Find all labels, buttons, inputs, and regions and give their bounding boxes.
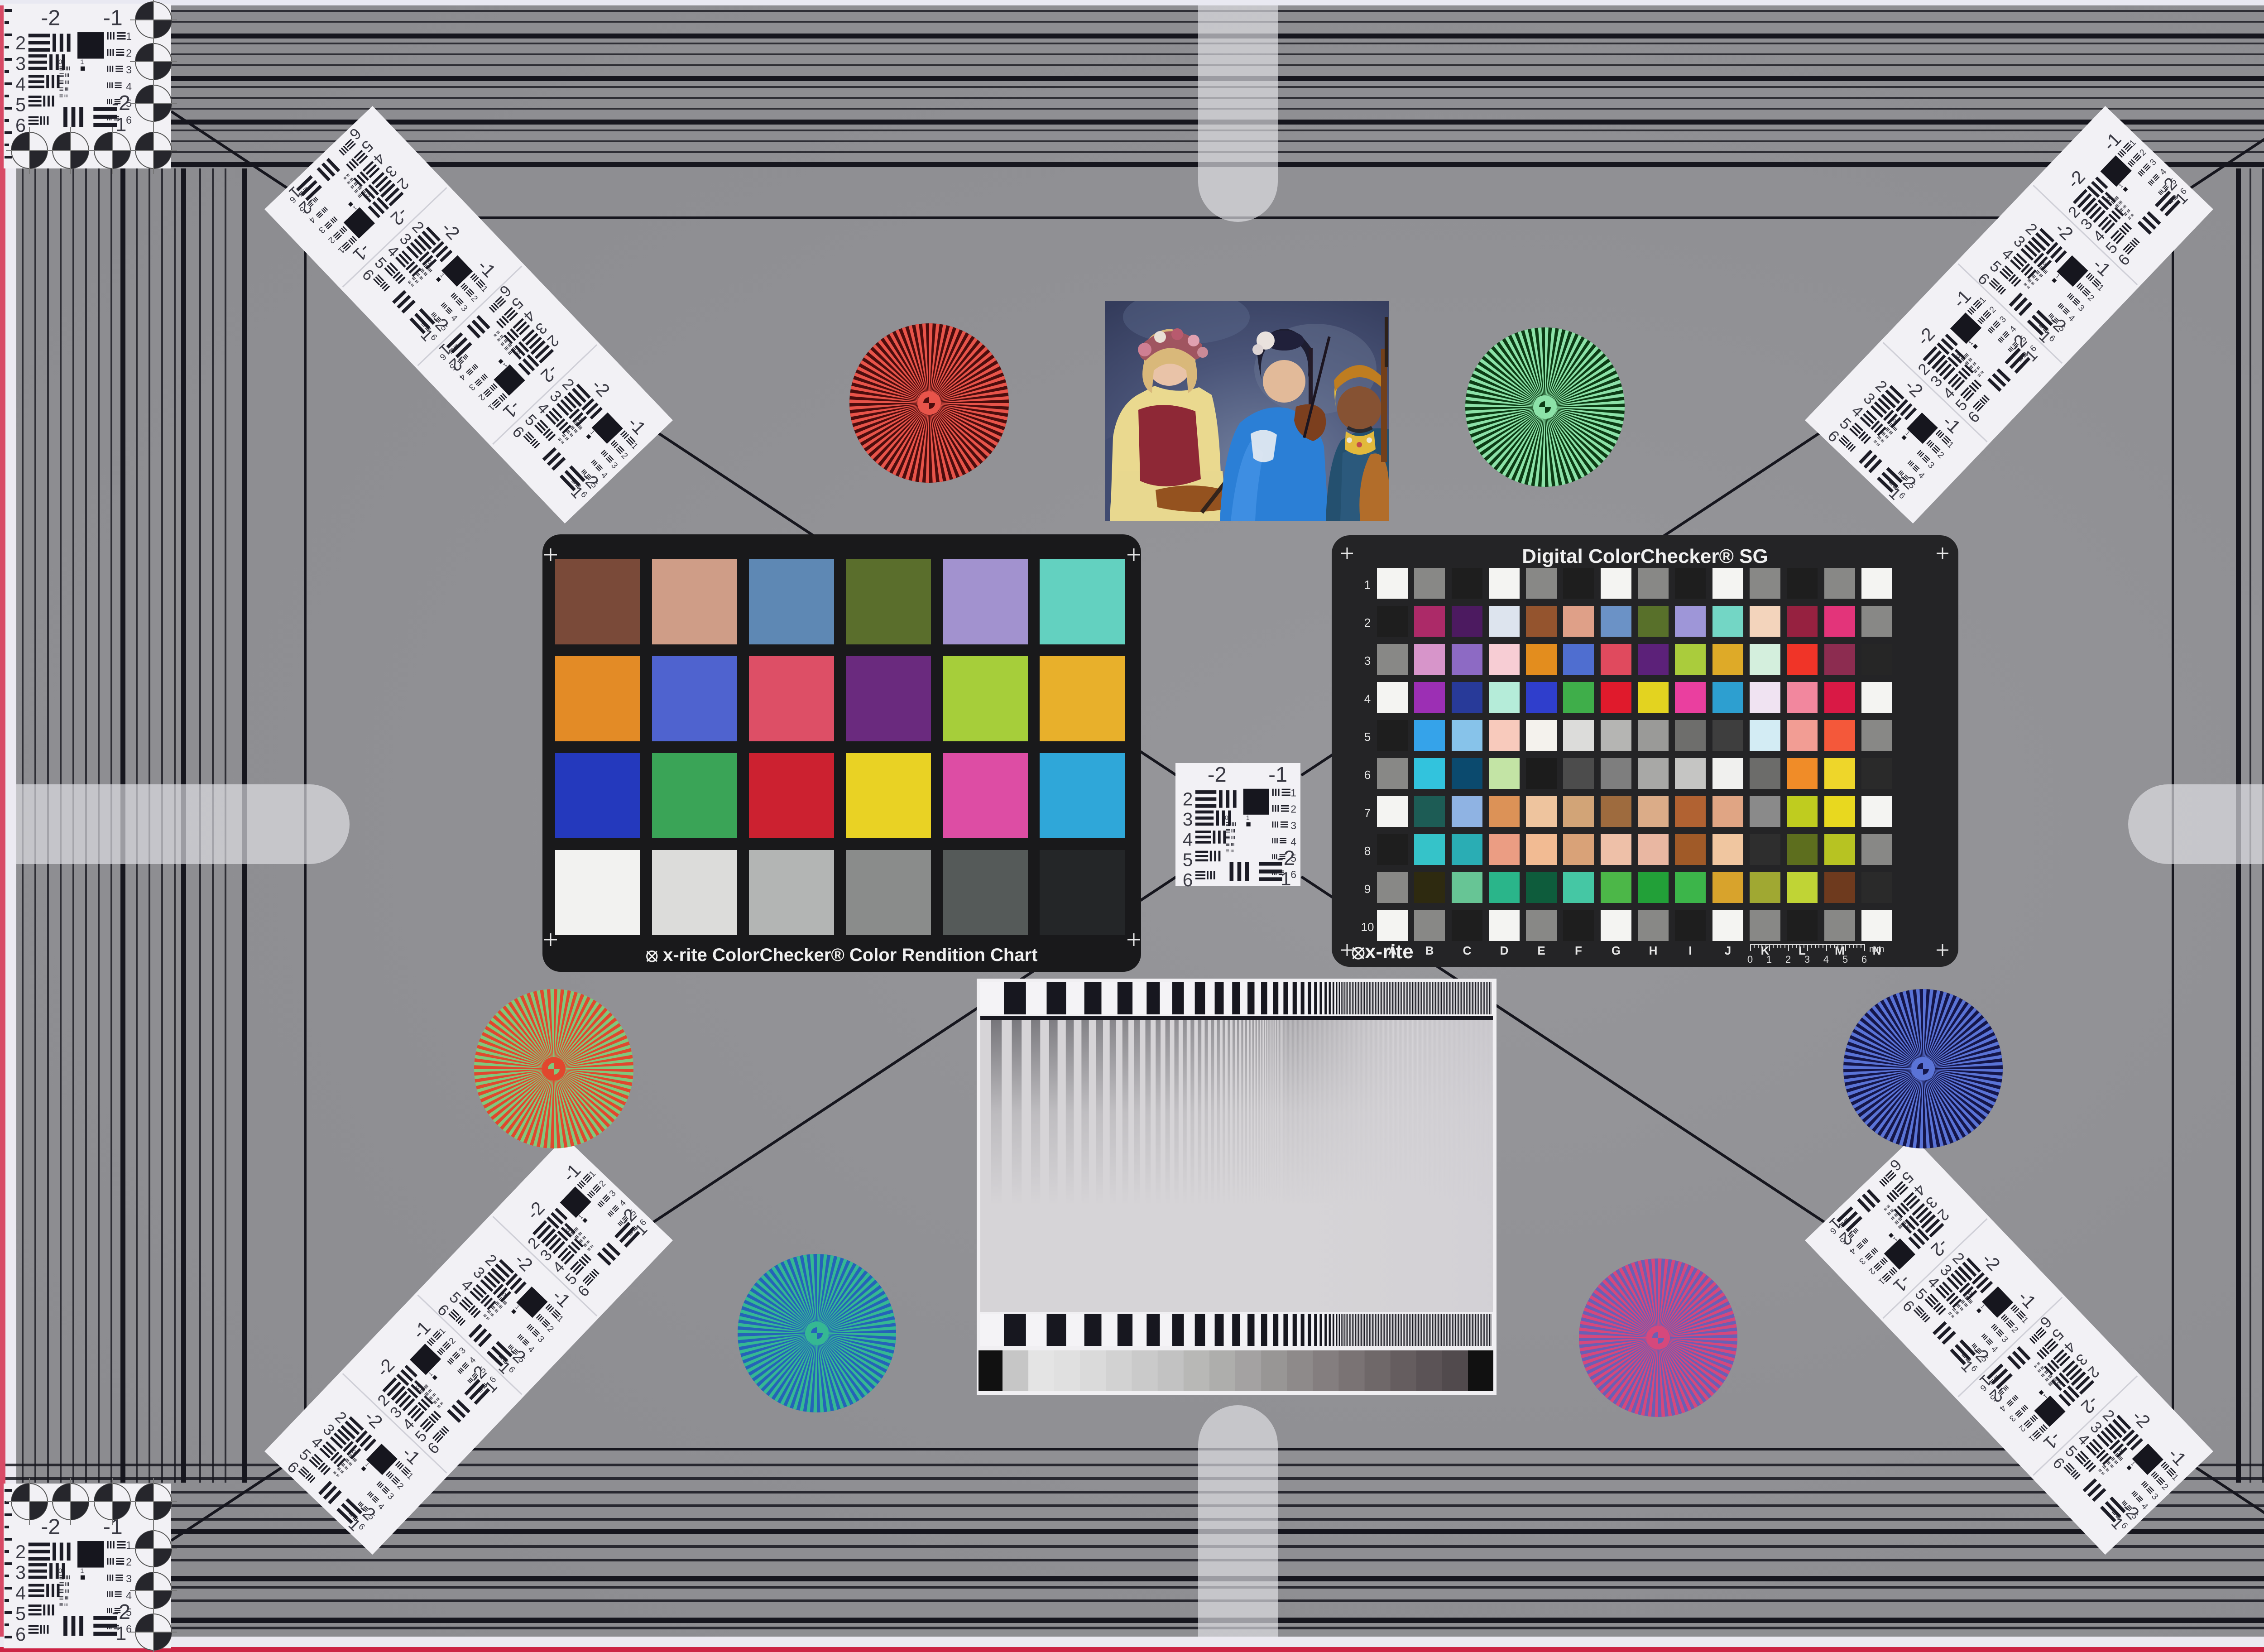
svg-text:6: 6: [1861, 954, 1867, 965]
svg-text:E: E: [1537, 944, 1545, 957]
svg-text:⦻ x-rite ColorChecker® Color: ⦻ x-rite ColorChecker® Color Rendition C…: [646, 945, 1038, 965]
svg-text:B: B: [1425, 944, 1434, 957]
svg-text:F: F: [1575, 944, 1582, 957]
svg-text:7: 7: [1364, 806, 1371, 820]
svg-text:Digital ColorChecker® SG: Digital ColorChecker® SG: [1522, 545, 1768, 567]
svg-text:H: H: [1649, 944, 1658, 957]
svg-text:3: 3: [1364, 654, 1371, 668]
svg-text:2: 2: [1785, 954, 1791, 965]
svg-text:⦻x-rite: ⦻x-rite: [1352, 941, 1414, 963]
svg-text:6: 6: [1364, 768, 1371, 782]
svg-text:9: 9: [1364, 882, 1371, 896]
svg-text:D: D: [1500, 944, 1509, 957]
svg-text:J: J: [1725, 944, 1731, 957]
svg-text:mm: mm: [1869, 944, 1884, 954]
svg-text:1: 1: [1766, 954, 1772, 965]
svg-text:3: 3: [1804, 954, 1810, 965]
svg-text:C: C: [1463, 944, 1472, 957]
svg-text:8: 8: [1364, 844, 1371, 858]
svg-text:4: 4: [1823, 954, 1829, 965]
svg-text:10: 10: [1361, 920, 1374, 934]
svg-text:0: 0: [1747, 954, 1753, 965]
svg-text:5: 5: [1842, 954, 1848, 965]
svg-text:4: 4: [1364, 692, 1371, 706]
svg-text:G: G: [1612, 944, 1621, 957]
svg-text:1: 1: [1364, 578, 1371, 591]
svg-text:2: 2: [1364, 616, 1371, 629]
svg-text:5: 5: [1364, 730, 1371, 744]
svg-text:I: I: [1688, 944, 1692, 957]
